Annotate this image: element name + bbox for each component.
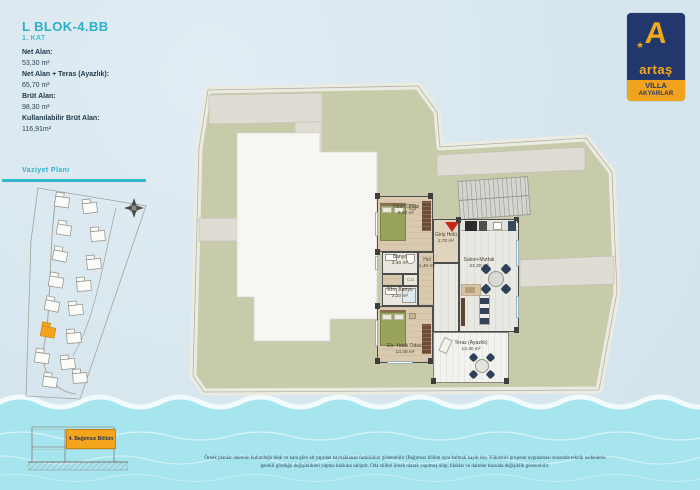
pier: [428, 358, 433, 364]
stat-label: Net Alan + Teras (Ayazlık):: [22, 69, 162, 80]
wardrobe: [422, 324, 431, 354]
sofa: [479, 295, 490, 325]
entrance-arrow-icon: [445, 222, 459, 232]
nightstand: [409, 313, 416, 319]
disclaimer-line1: Örnek planlar dairenin bulunduğu blok ve…: [175, 455, 635, 463]
room-name: Ebv. Banyo: [387, 288, 412, 294]
brand-logo: A ★ artaş VİLLA AKYARLAR: [627, 13, 685, 101]
brand-name: artaş: [627, 62, 685, 77]
floor-label: 1. KAT: [22, 35, 45, 42]
floorplan-brochure-page: Yatak Odası 9,60 m² Banyo 3,40 m² Hol 1,…: [0, 0, 700, 490]
site-location-map: [18, 186, 168, 411]
stat-label: Net Alan:: [22, 47, 162, 58]
pier: [375, 303, 380, 309]
pier: [428, 193, 433, 199]
section-highlight-unit: 4. Bağımsız Bölüm: [66, 429, 116, 449]
room-area: 2,70 m²: [435, 239, 457, 245]
room-area: 2,20 m²: [387, 294, 412, 300]
pier: [375, 358, 380, 364]
room-name: Giriş Holü: [435, 233, 457, 239]
oven: [479, 221, 487, 231]
site-plan-title: Vaziyet Planı: [22, 167, 70, 174]
tv-unit: [461, 298, 465, 326]
disclaimer-line2: gerekli gördüğü değişiklikleri yapma hak…: [175, 463, 635, 471]
stat-label: Brüt Alan:: [22, 91, 162, 102]
room-area: 3,40 m²: [392, 261, 408, 267]
logo-tagline: VİLLA AKYARLAR: [627, 80, 685, 101]
unit-floor-plan: Yatak Odası 9,60 m² Banyo 3,40 m² Hol 1,…: [375, 192, 523, 390]
stat-value: 116,91m²: [22, 124, 162, 135]
kitchen-sink: [493, 222, 502, 230]
pillow: [382, 314, 392, 320]
window: [375, 212, 378, 236]
room-label-bedroom: Yatak Odası 9,60 m²: [392, 205, 419, 217]
area-stats: Net Alan: 53,30 m² Net Alan + Teras (Aya…: [22, 47, 162, 135]
window: [516, 296, 519, 318]
room-label-ensuite: Ebv. Banyo 2,20 m²: [387, 288, 412, 300]
pillow: [394, 314, 404, 320]
room-lobby: [382, 274, 403, 286]
room-area: 1,40 m²: [419, 264, 435, 270]
coffee-table: [465, 287, 475, 293]
room-label-living: Salon+Mutfak 22,20 m²: [464, 258, 495, 270]
cooktop: [465, 221, 477, 231]
stat-value: 65,70 m²: [22, 80, 162, 91]
disclaimer-text: Örnek planlar dairenin bulunduğu blok ve…: [175, 455, 635, 471]
room-label-master-bedroom: Eb. Yatak Odası 13,30 m²: [387, 344, 423, 356]
pillow: [382, 207, 392, 213]
window: [375, 256, 378, 270]
pier: [514, 327, 519, 333]
wardrobe: [422, 201, 431, 231]
tagline-line1: VİLLA: [627, 81, 685, 91]
fridge: [508, 221, 516, 231]
window: [375, 320, 378, 346]
pier: [375, 249, 380, 255]
room-label-bathroom: Banyo 3,40 m²: [392, 255, 408, 267]
compass-icon: [124, 198, 144, 218]
room-area: 9,60 m²: [392, 211, 419, 217]
stat-label: Kullanılabilir Brüt Alan:: [22, 113, 162, 124]
stat-value: 98,30 m²: [22, 102, 162, 113]
walkway: [209, 93, 322, 124]
tagline-line2: AKYARLAR: [627, 91, 685, 98]
site-plan-underline: [2, 179, 146, 182]
room-name: Teras (Ayazlık): [455, 341, 488, 347]
room-label-hall: Hol 1,40 m²: [419, 258, 435, 270]
terrace-table: [475, 359, 489, 373]
pier: [431, 378, 436, 384]
room-living-extension: [433, 263, 459, 332]
window: [516, 240, 519, 266]
room-name: Eb. Yatak Odası: [387, 344, 423, 350]
dining-table: [488, 271, 504, 287]
room-label-closet: C.D.: [407, 277, 415, 282]
room-area: 22,20 m²: [464, 264, 495, 270]
room-name: Yatak Odası: [392, 205, 419, 211]
villa-footprint: [34, 192, 105, 388]
room-label-entry: Giriş Holü 2,70 m²: [435, 233, 457, 245]
highlighted-villa: [40, 322, 56, 338]
room-label-terrace: Teras (Ayazlık) 12,40 m²: [455, 341, 488, 353]
stat-value: 53,30 m²: [22, 58, 162, 69]
window: [387, 361, 413, 364]
pier: [504, 378, 509, 384]
logo-emblem: A ★ artaş: [627, 13, 685, 80]
walkway: [520, 256, 614, 287]
pier: [375, 193, 380, 199]
room-name: Banyo: [392, 255, 408, 261]
room-area: 12,40 m²: [455, 347, 488, 353]
room-name: Salon+Mutfak: [464, 258, 495, 264]
room-area: 13,30 m²: [387, 350, 423, 356]
page-title: L BLOK-4.BB: [22, 19, 109, 34]
star-icon: ★: [636, 40, 644, 51]
adjacent-building-mass: [237, 133, 377, 341]
